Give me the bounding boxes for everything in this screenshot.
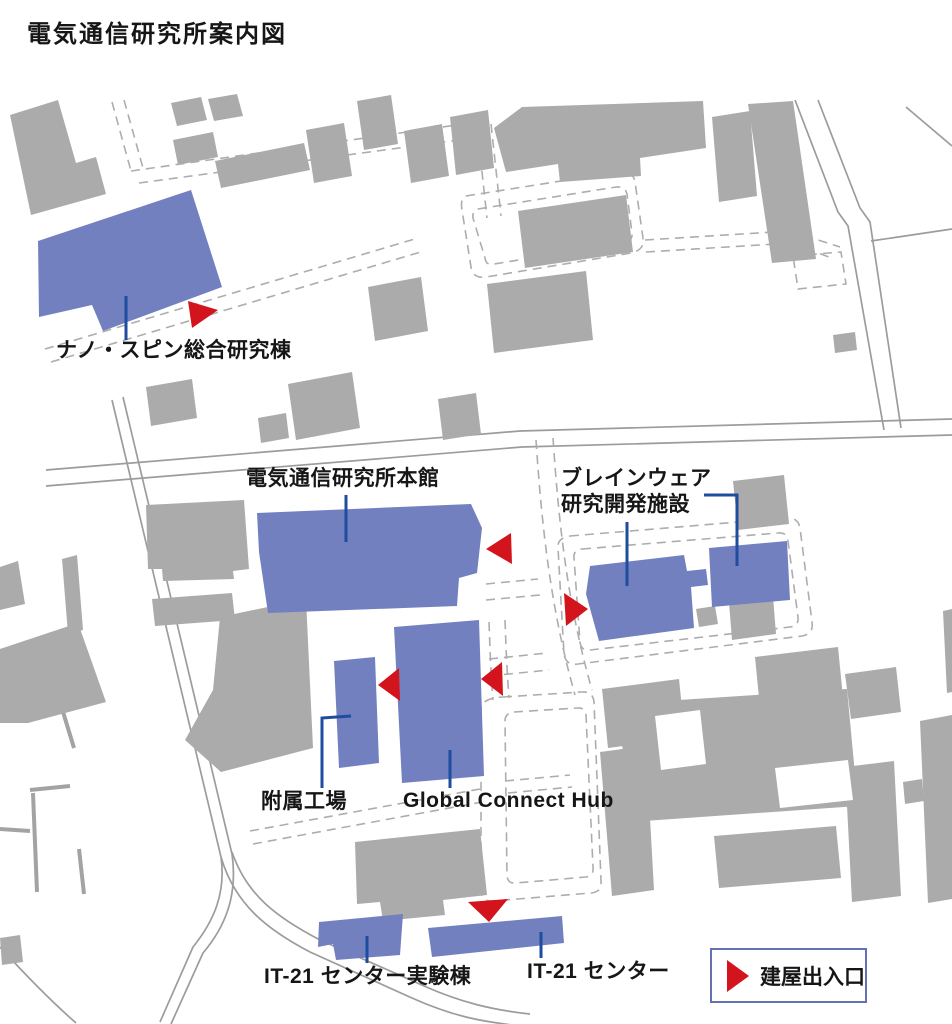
building-honkan xyxy=(257,504,482,613)
background-building xyxy=(600,746,654,896)
background-building xyxy=(748,101,816,263)
building-it21-center-lab xyxy=(318,914,403,960)
background-building xyxy=(185,599,313,772)
background-building xyxy=(258,413,289,443)
road-line xyxy=(46,419,952,470)
footpath-dashed xyxy=(505,775,570,781)
footpath-dashed xyxy=(489,622,493,700)
wall-line xyxy=(79,849,84,894)
road-line xyxy=(818,100,901,428)
background-building xyxy=(208,94,243,121)
label-brainware-line2: 研究開発施設 xyxy=(561,492,712,518)
footpath-dashed xyxy=(124,100,143,168)
road-line xyxy=(795,100,884,430)
label-it21-center: IT-21 センター xyxy=(527,959,670,985)
background-building xyxy=(146,500,249,581)
building-brainware-annex xyxy=(709,541,790,607)
label-global-connect-hub: Global Connect Hub xyxy=(403,788,614,814)
wall-line xyxy=(33,793,37,892)
label-main-building: 電気通信研究所本館 xyxy=(246,466,440,492)
building-global-connect-hub xyxy=(394,620,484,783)
background-building xyxy=(306,123,352,183)
background-building xyxy=(943,609,952,693)
footpath-dashed xyxy=(489,653,547,659)
wall-line xyxy=(30,786,70,790)
background-building xyxy=(712,111,757,202)
entrance-marker xyxy=(378,668,400,701)
background-building xyxy=(494,101,706,182)
label-attached-factory: 附属工場 xyxy=(261,789,347,815)
background-building xyxy=(357,95,398,150)
background-building xyxy=(845,761,901,902)
footpath-dashed xyxy=(505,620,509,698)
road-line xyxy=(46,435,952,486)
campus-map-page: 電気通信研究所案内図 ナノ・スピン総合研究棟 電気通信研究所本館 ブレインウェア… xyxy=(0,0,952,1024)
background-building xyxy=(146,379,197,426)
background-building xyxy=(171,97,207,126)
label-brainware-line1: ブレインウェア xyxy=(561,466,712,492)
background-building xyxy=(487,271,593,353)
background-building xyxy=(368,277,428,341)
label-brainware-facility: ブレインウェア 研究開発施設 xyxy=(561,466,712,517)
building-brainware xyxy=(586,555,708,641)
legend: 建屋出入口 xyxy=(710,948,867,1003)
background-building xyxy=(903,779,924,804)
campus-map xyxy=(0,0,952,1024)
background-building xyxy=(288,372,360,440)
label-nano-spin-building: ナノ・スピン総合研究棟 xyxy=(56,338,291,364)
courtyard xyxy=(775,760,853,808)
building-fuzoku-kojo xyxy=(334,657,379,768)
background-building xyxy=(0,935,23,965)
courtyard xyxy=(655,710,706,770)
footpath-dashed xyxy=(486,595,540,600)
entrance-icon xyxy=(725,958,751,994)
background-building xyxy=(355,829,487,921)
footpath-dashed xyxy=(486,579,538,584)
road-line xyxy=(906,107,952,146)
background-building xyxy=(450,110,494,175)
background-building xyxy=(215,143,310,188)
legend-label: 建屋出入口 xyxy=(760,961,865,991)
background-building xyxy=(833,332,857,353)
entrance-marker xyxy=(188,301,218,328)
background-building xyxy=(714,826,841,888)
background-building xyxy=(696,606,718,627)
road-line xyxy=(871,229,952,241)
entrance-marker xyxy=(486,533,512,564)
background-building xyxy=(845,667,901,719)
background-building xyxy=(438,393,481,440)
footpath-dashed xyxy=(112,102,131,171)
background-building xyxy=(10,100,106,215)
background-building xyxy=(0,623,106,723)
entrance-marker xyxy=(468,899,508,922)
wall-line xyxy=(0,829,30,831)
background-building xyxy=(733,475,789,530)
background-building xyxy=(62,555,83,634)
background-building xyxy=(0,561,25,610)
label-it21-center-lab: IT-21 センター実験棟 xyxy=(264,964,471,990)
background-building xyxy=(404,124,449,183)
building-it21-center xyxy=(428,916,564,957)
page-title: 電気通信研究所案内図 xyxy=(27,14,287,49)
background-building xyxy=(920,715,952,903)
background-building xyxy=(518,195,633,268)
